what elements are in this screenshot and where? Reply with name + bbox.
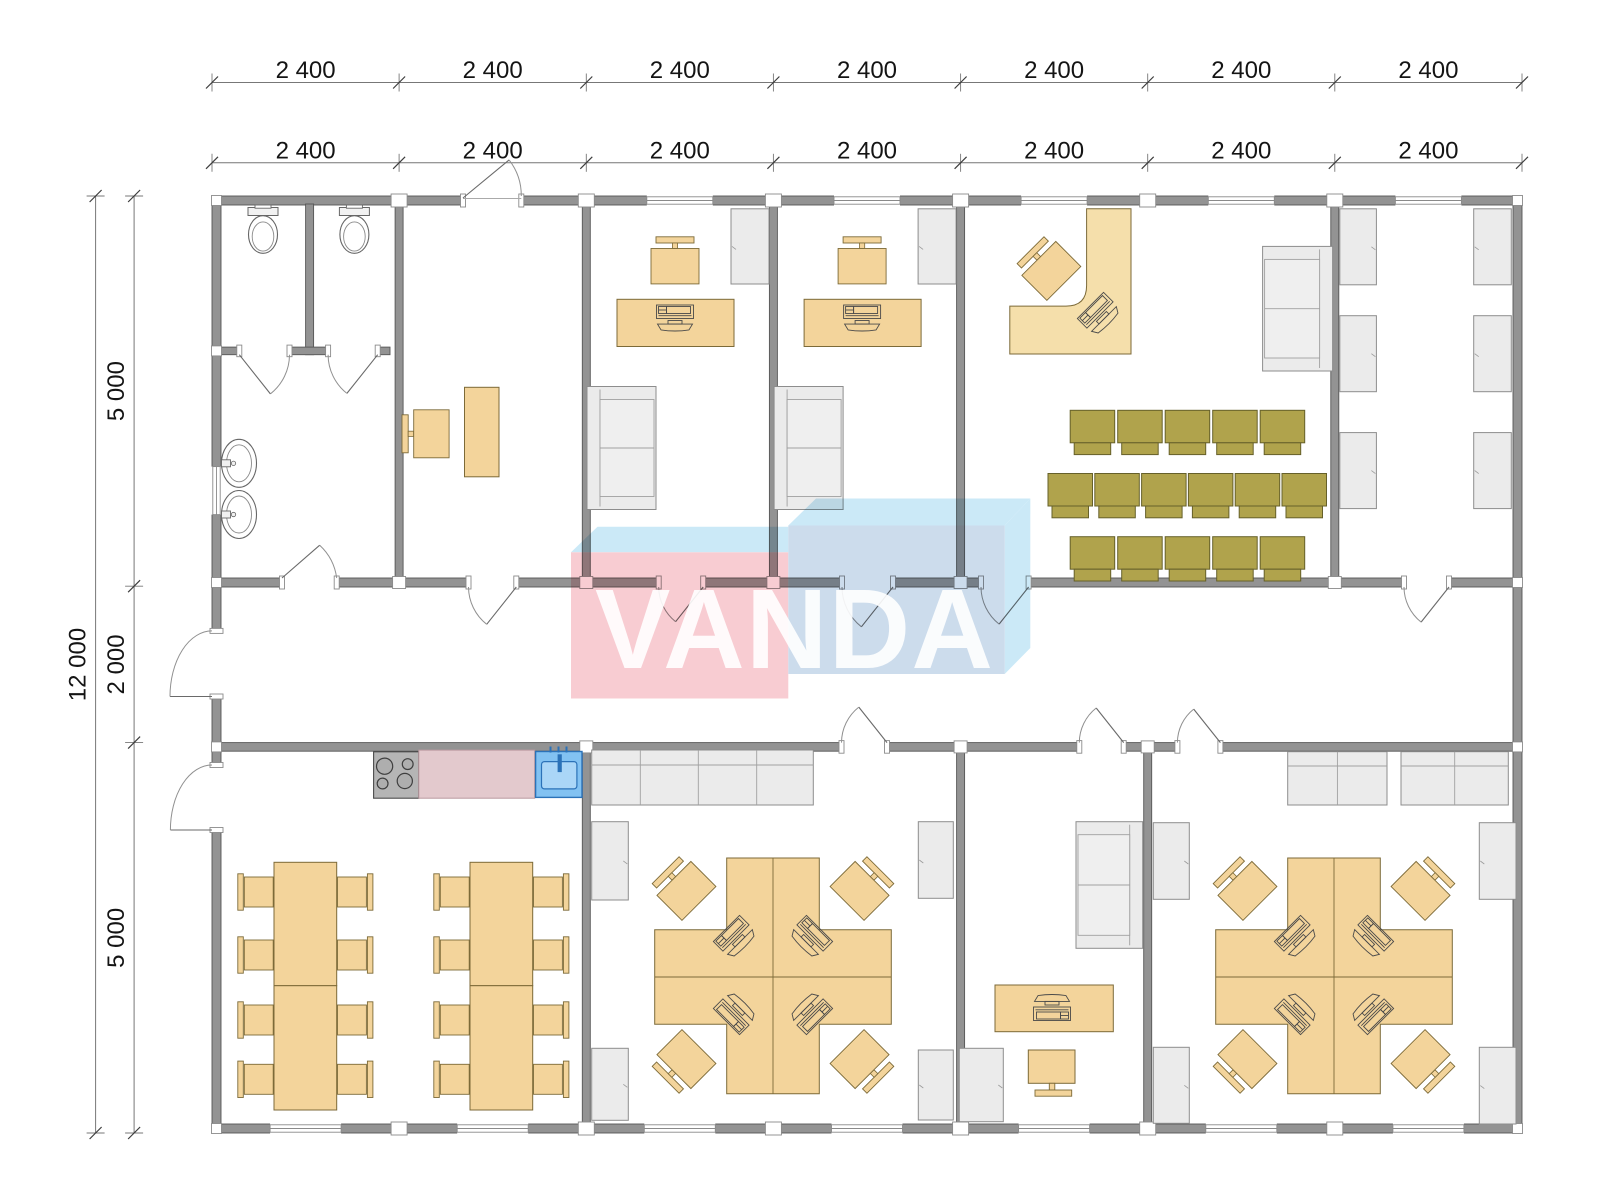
svg-text:12 000: 12 000 [65, 628, 92, 701]
svg-text:2 400: 2 400 [650, 137, 710, 164]
svg-text:5 000: 5 000 [103, 361, 130, 421]
svg-text:2 400: 2 400 [650, 57, 710, 84]
svg-text:2 400: 2 400 [1211, 57, 1271, 84]
svg-text:5 000: 5 000 [103, 908, 130, 968]
svg-text:2 400: 2 400 [1398, 57, 1458, 84]
svg-text:2 400: 2 400 [1211, 137, 1271, 164]
svg-text:2 400: 2 400 [276, 57, 336, 84]
svg-text:2 400: 2 400 [276, 137, 336, 164]
svg-text:2 400: 2 400 [463, 57, 523, 84]
svg-text:VANDA: VANDA [595, 566, 993, 692]
svg-text:2 400: 2 400 [1398, 137, 1458, 164]
svg-text:2 400: 2 400 [1024, 57, 1084, 84]
svg-text:2 400: 2 400 [463, 137, 523, 164]
svg-text:2 400: 2 400 [837, 137, 897, 164]
svg-text:2 400: 2 400 [1024, 137, 1084, 164]
svg-text:2 400: 2 400 [837, 57, 897, 84]
svg-text:2 000: 2 000 [103, 634, 130, 694]
